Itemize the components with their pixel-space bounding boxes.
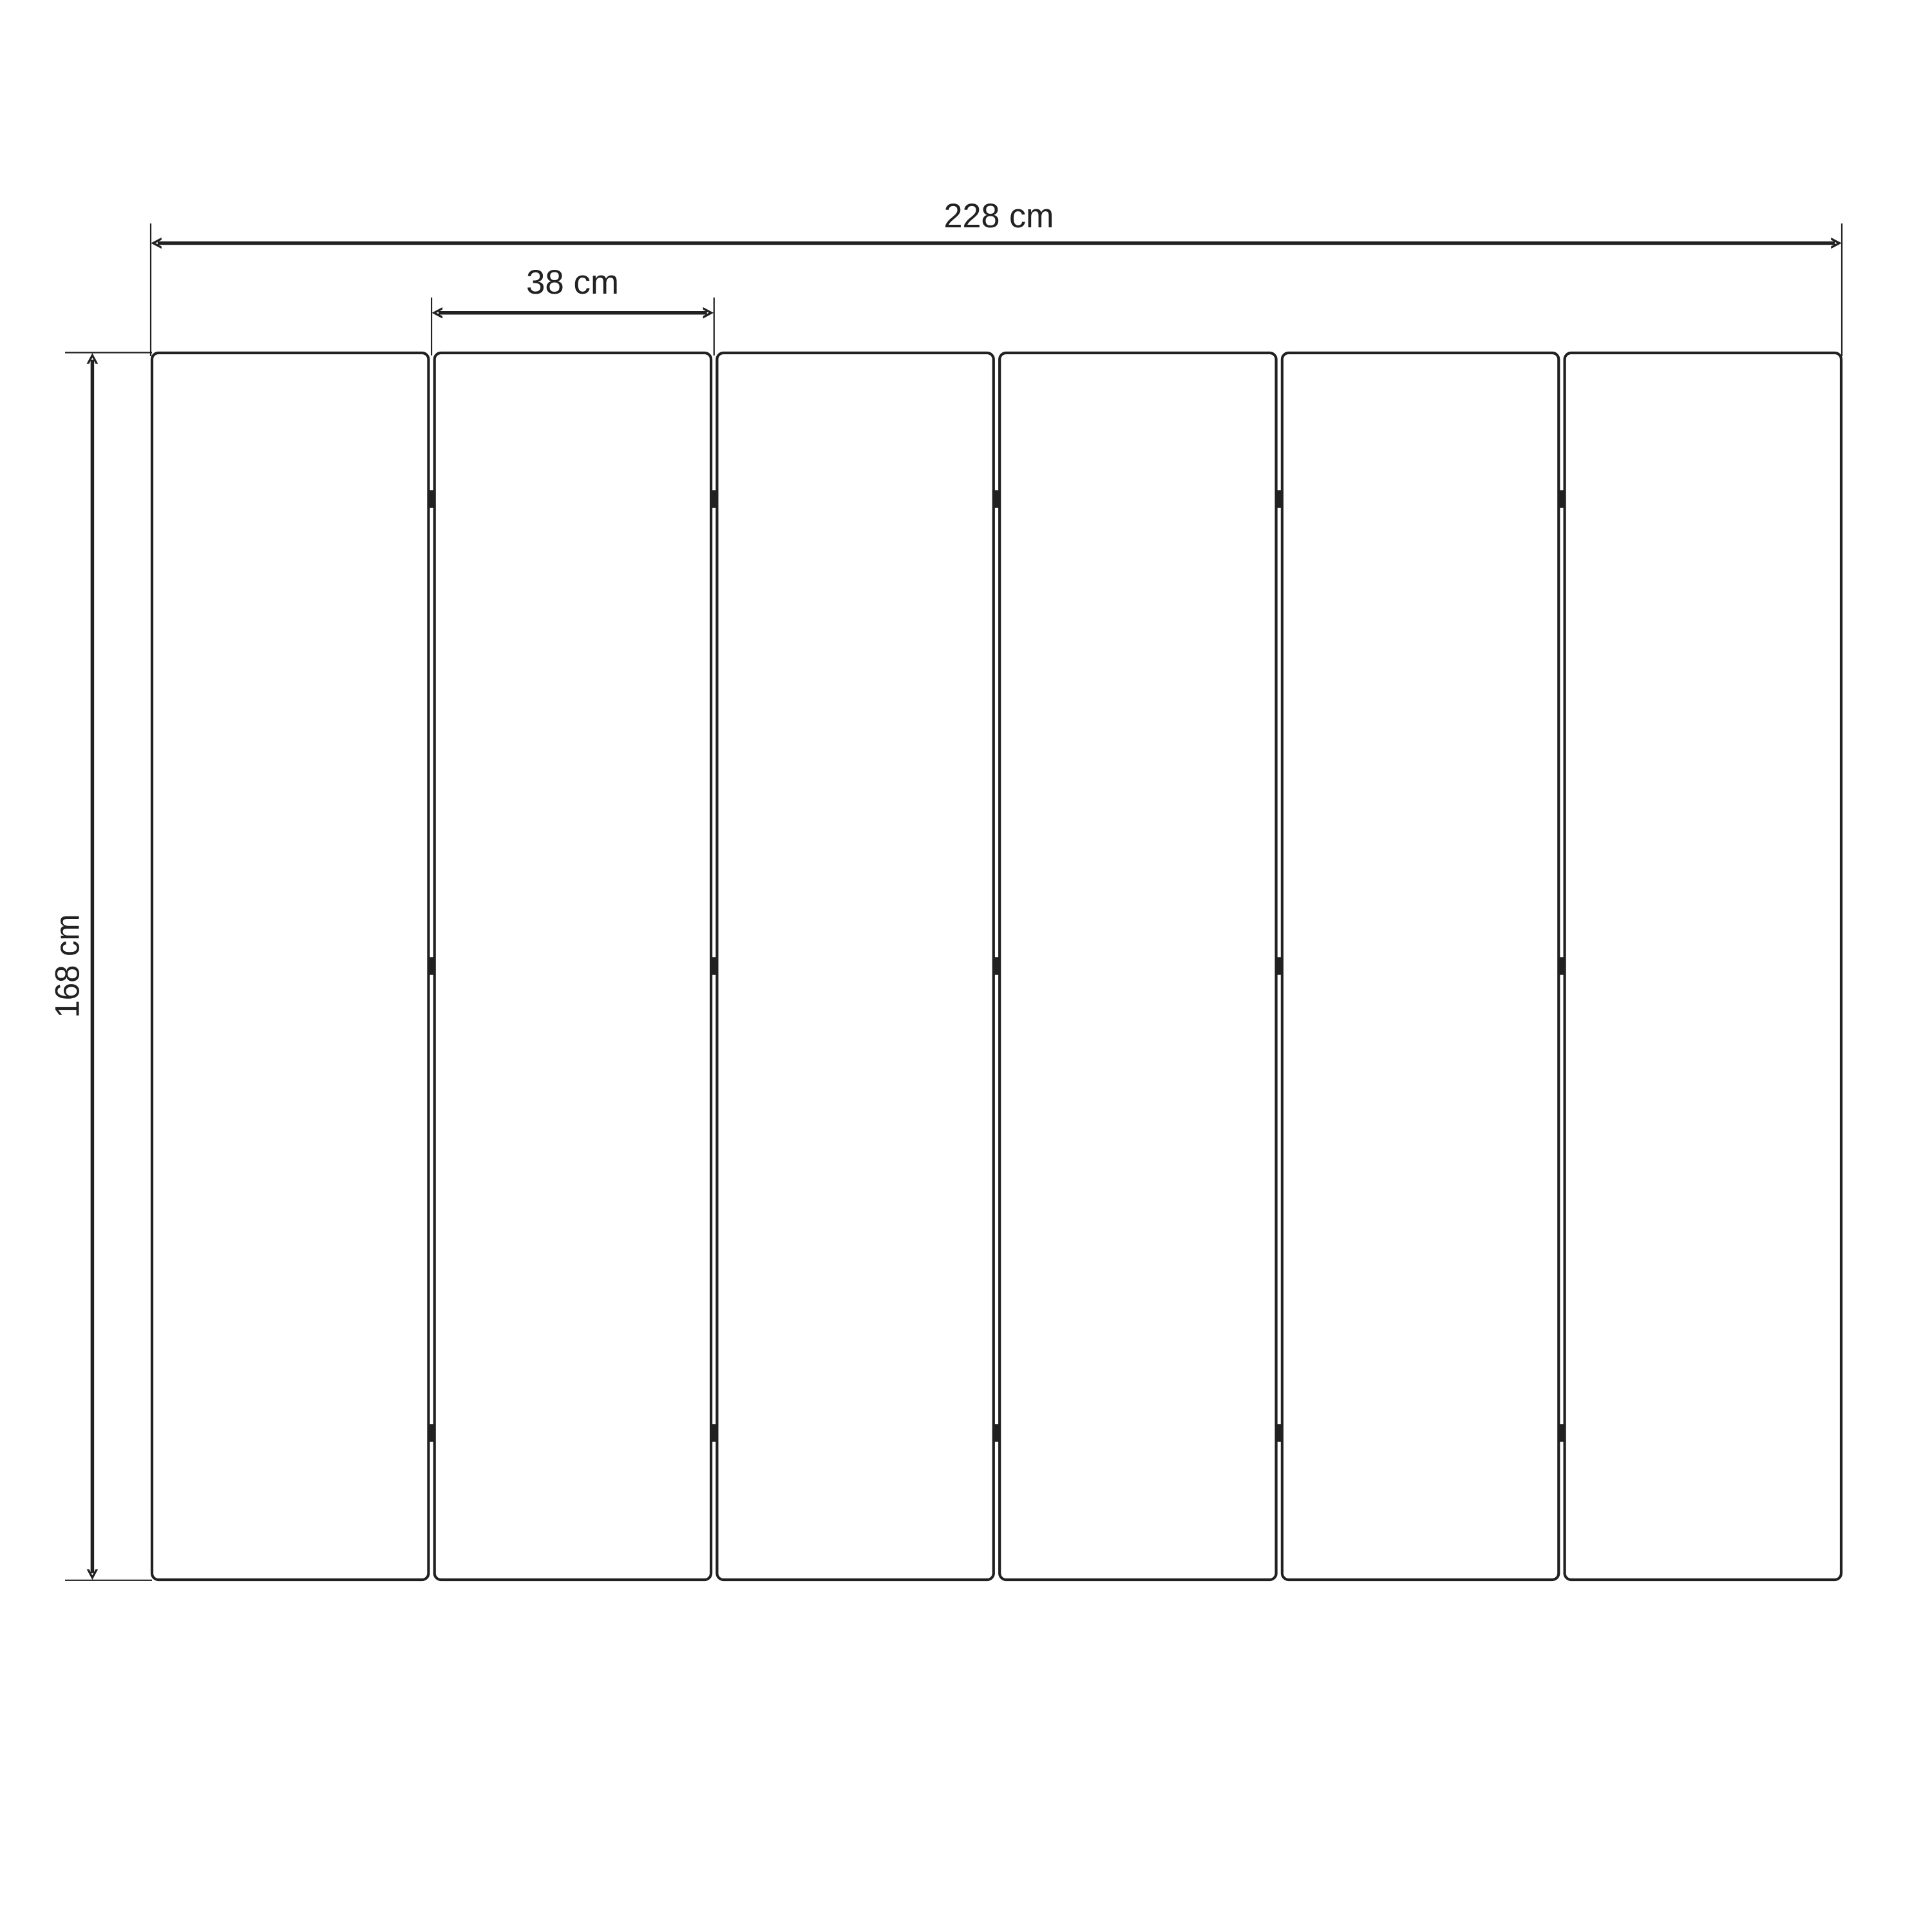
svg-text:228 cm: 228 cm bbox=[944, 197, 1054, 235]
svg-text:38 cm: 38 cm bbox=[526, 263, 619, 301]
svg-text:168 cm: 168 cm bbox=[49, 914, 87, 1018]
